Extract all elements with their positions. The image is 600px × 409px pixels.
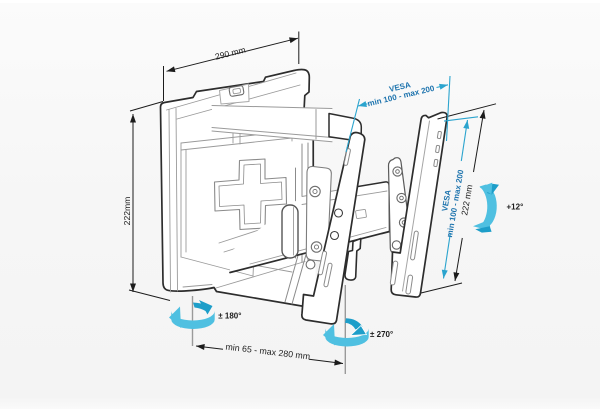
- svg-text:± 180°: ± 180°: [218, 311, 241, 320]
- svg-text:+12°: +12°: [507, 203, 524, 212]
- svg-text:± 270°: ± 270°: [370, 330, 393, 339]
- svg-text:222mm: 222mm: [122, 197, 132, 226]
